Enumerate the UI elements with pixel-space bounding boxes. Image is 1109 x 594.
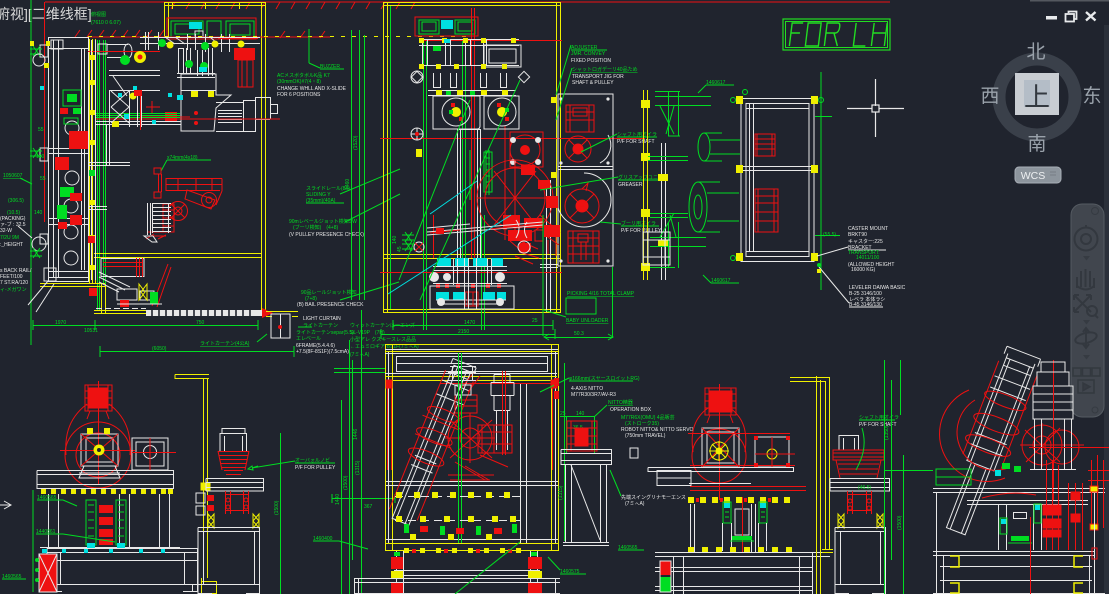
svg-text:(7610 0 6.07): (7610 0 6.07)	[91, 20, 121, 26]
svg-text:BRKT90: BRKT90	[848, 232, 867, 238]
svg-text:14011/100: 14011/100	[856, 255, 879, 261]
svg-text:(1315): (1315)	[355, 460, 361, 475]
svg-text:(V PULLEY PRESENCE CHECK): (V PULLEY PRESENCE CHECK)	[289, 232, 364, 238]
svg-text:P/F FOR SHAFT: P/F FOR SHAFT	[859, 422, 897, 428]
svg-text:1470: 1470	[464, 320, 475, 326]
svg-text:(B) BAIL PRESENCE CHECK: (B) BAIL PRESENCE CHECK	[297, 302, 364, 308]
svg-text:北: 北	[1026, 41, 1045, 63]
svg-text:1970: 1970	[55, 320, 66, 326]
svg-text:(306.5): (306.5)	[8, 198, 24, 204]
svg-text:(6050): (6050)	[152, 346, 167, 352]
svg-text:(750mm TRAVEL): (750mm TRAVEL)	[625, 433, 666, 439]
svg-text:(7ミㇸA): (7ミㇸA)	[625, 501, 645, 507]
svg-text:(55.5): (55.5)	[823, 232, 836, 238]
svg-text:先端スイングリナモーエンス: 先端スイングリナモーエンス	[621, 494, 686, 501]
svg-text:俯视][二维线框]: 俯视][二维线框]	[0, 6, 92, 22]
svg-text:NITTO精器: NITTO精器	[608, 399, 633, 406]
svg-text:ウィットカーテンは一エンズ: ウィットカーテンは一エンズ	[350, 322, 415, 329]
svg-text:25: 25	[532, 318, 538, 324]
svg-text:东: 东	[1082, 85, 1101, 107]
svg-text:SL-V19P (7H): SL-V19P (7H)	[350, 330, 385, 336]
svg-text:キャスター:225: キャスター:225	[848, 238, 883, 245]
svg-text:90品レールジョット検知: 90品レールジョット検知	[301, 289, 357, 296]
svg-text:1050607: 1050607	[3, 173, 23, 179]
svg-text:西: 西	[980, 86, 999, 107]
svg-text:140: 140	[34, 210, 43, 216]
svg-text:上: 上	[1024, 82, 1050, 112]
svg-text:ACメスボタボルK品 K7: ACメスボタボルK品 K7	[277, 72, 330, 79]
svg-text:エレベール: エレベール	[296, 336, 321, 342]
svg-text:PICKING 4/16 TOTAL CLAMP: PICKING 4/16 TOTAL CLAMP	[567, 291, 635, 297]
svg-text:(30mmOK)#7(4・8): (30mmOK)#7(4・8)	[277, 79, 321, 85]
svg-text:2150: 2150	[458, 329, 469, 335]
svg-text:シャットロガデーリ40品ため: シャットロガデーリ40品ため	[572, 66, 638, 73]
svg-text:ライトカーテン(4公A): ライトカーテン(4公A)	[200, 341, 250, 347]
svg-text:16000 KG): 16000 KG)	[851, 267, 876, 273]
svg-text::_HEIGHT: :_HEIGHT	[0, 242, 23, 248]
svg-text:(1500): (1500)	[343, 475, 349, 490]
svg-text:ライトカーテン: ライトカーテン	[303, 323, 338, 329]
svg-text:10531: 10531	[84, 328, 98, 334]
svg-text:GREASER: GREASER	[618, 182, 643, 188]
svg-text:(ブーリ検知) (4+8): (ブーリ検知) (4+8)	[293, 224, 338, 231]
svg-text:M77R6X(OMU) 4品販芸: M77R6X(OMU) 4品販芸	[621, 414, 675, 421]
svg-text:+7.5(8F-8S1F)(7.5cmA): +7.5(8F-8S1F)(7.5cmA)	[296, 349, 349, 355]
svg-text:LIGHT CURTAIN: LIGHT CURTAIN	[303, 316, 341, 322]
svg-text:ァ-ブ : 32.5: ァ-ブ : 32.5	[0, 221, 26, 228]
svg-text:50.3: 50.3	[574, 331, 584, 337]
svg-text:(1520): (1520)	[353, 135, 359, 150]
svg-text:367: 367	[364, 504, 373, 510]
svg-text:ィ-メガワン: ィ-メガワン	[0, 286, 27, 293]
svg-text:BABY UNLOADER: BABY UNLOADER	[566, 318, 609, 324]
svg-text:(46.5): (46.5)	[858, 485, 871, 491]
svg-text:FOR 6 POSITIONS: FOR 6 POSITIONS	[277, 92, 321, 98]
svg-text:南: 南	[1027, 133, 1046, 155]
svg-text:1460: 1460	[345, 179, 351, 190]
svg-text:SHAFT & PULLEY: SHAFT & PULLEY	[572, 80, 614, 86]
svg-text:FIXED POSITION: FIXED POSITION	[571, 58, 611, 64]
svg-text:JMR. CONVEY: JMR. CONVEY	[571, 51, 606, 57]
svg-text:7 ST.RA/120: 7 ST.RA/120	[0, 280, 28, 286]
svg-text:俯视图: 俯视图	[91, 11, 106, 18]
svg-text:32-W: 32-W	[0, 228, 12, 234]
svg-text:55: 55	[40, 176, 46, 182]
svg-text:P/F FOR SHAFT: P/F FOR SHAFT	[617, 139, 655, 145]
svg-text:(1500): (1500)	[897, 515, 903, 530]
svg-text:(1315): (1315)	[558, 485, 564, 500]
svg-text:140: 140	[36, 154, 45, 160]
svg-text:140: 140	[576, 411, 585, 417]
svg-text:OPERATION BOX: OPERATION BOX	[610, 407, 652, 413]
svg-text:P/F FOR PULLEY: P/F FOR PULLEY	[295, 465, 336, 471]
svg-text:55: 55	[38, 127, 44, 133]
svg-text:(1500): (1500)	[274, 500, 280, 515]
svg-text:140: 140	[392, 235, 398, 244]
svg-text:1440: 1440	[335, 494, 341, 505]
svg-text:(7ミㇸA): (7ミㇸA)	[350, 352, 370, 358]
svg-text:M77R30/3R7/AV-R3: M77R30/3R7/AV-R3	[571, 392, 616, 398]
svg-text:P/F FOR PULLEY: P/F FOR PULLEY	[621, 228, 662, 234]
svg-text:(1350): (1350)	[884, 425, 890, 440]
svg-text:25: 25	[560, 411, 566, 417]
svg-text:1446: 1446	[353, 429, 359, 440]
svg-text:750: 750	[196, 320, 205, 326]
svg-text:7/2U 9M: 7/2U 9M	[0, 235, 19, 241]
svg-text:小型アレ クスキースレス品品: 小型アレ クスキースレス品品	[350, 336, 416, 343]
svg-text:WCS: WCS	[1021, 170, 1046, 182]
